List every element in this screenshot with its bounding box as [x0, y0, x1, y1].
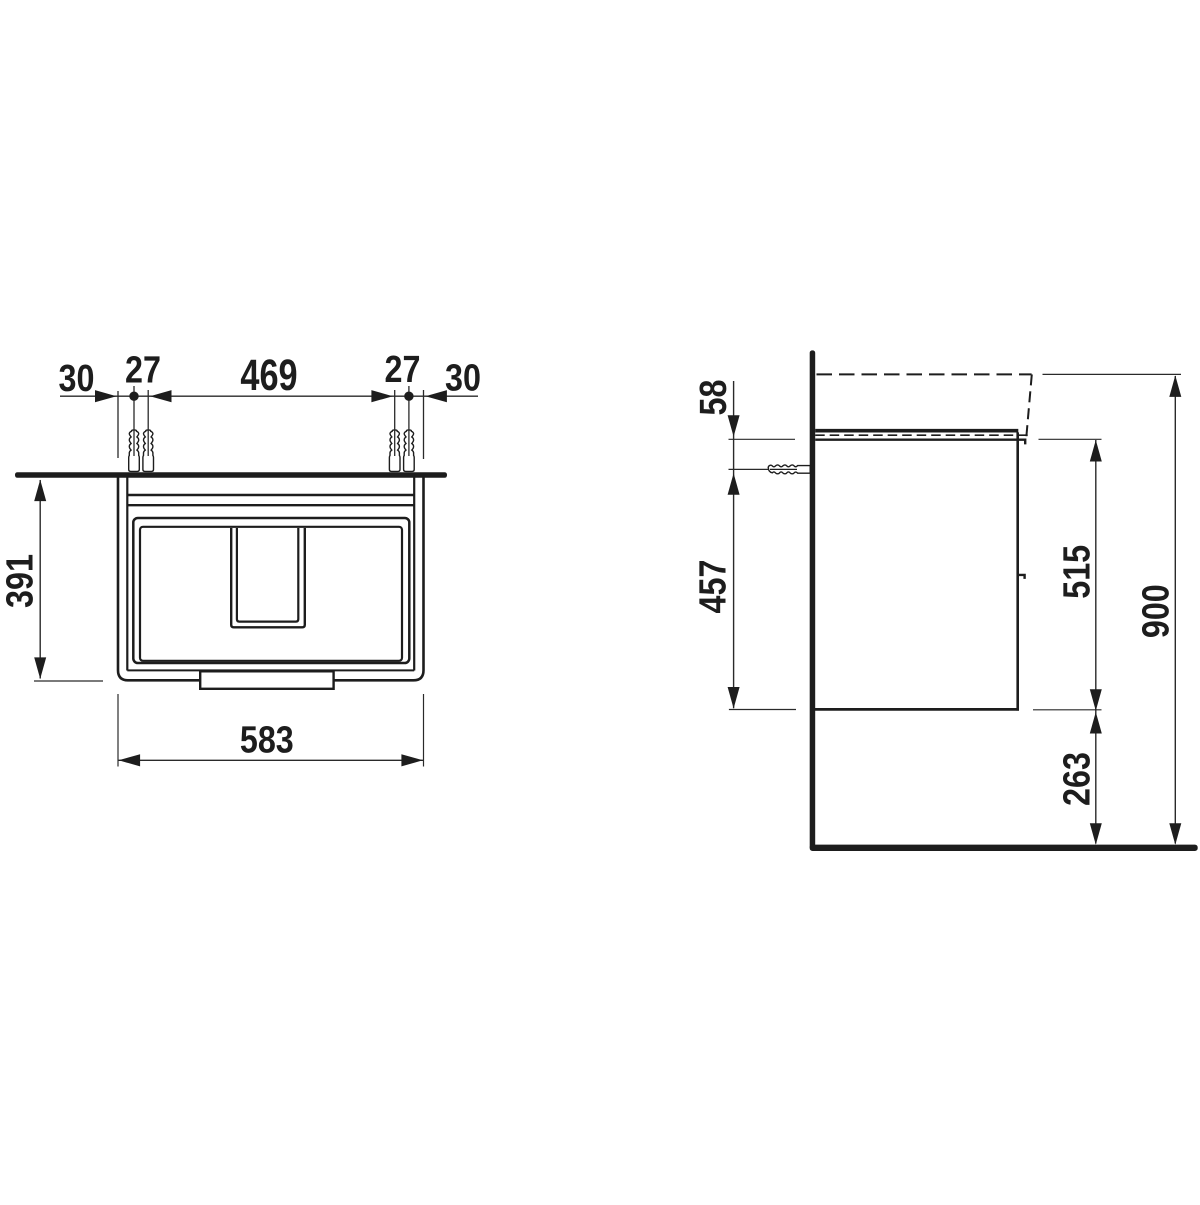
svg-text:457: 457 [692, 560, 734, 614]
svg-text:58: 58 [693, 380, 735, 416]
svg-text:583: 583 [240, 720, 294, 762]
svg-text:391: 391 [0, 554, 41, 608]
svg-text:30: 30 [59, 358, 95, 400]
svg-text:27: 27 [125, 350, 161, 392]
svg-text:469: 469 [240, 351, 297, 400]
svg-text:263: 263 [1056, 752, 1098, 806]
svg-text:515: 515 [1056, 545, 1098, 599]
svg-text:30: 30 [445, 358, 481, 400]
svg-text:27: 27 [385, 349, 421, 391]
svg-text:900: 900 [1135, 584, 1177, 638]
